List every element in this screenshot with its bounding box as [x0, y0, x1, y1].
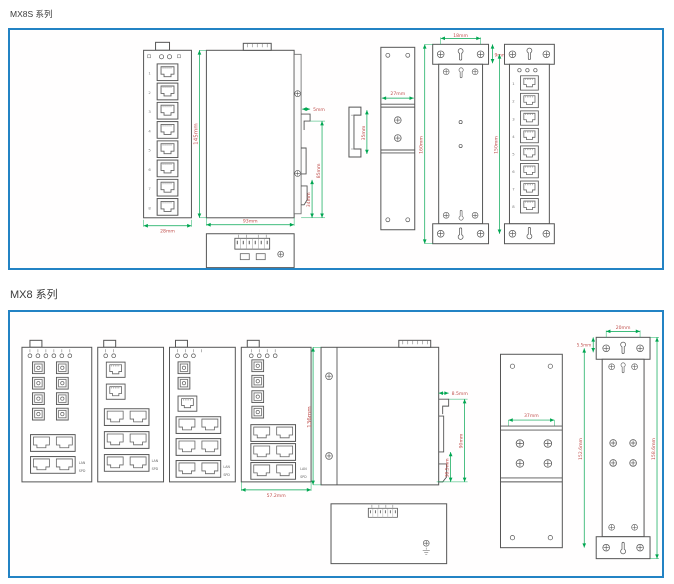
dim-mount-outer: 158.6mm — [651, 437, 657, 460]
front-view-wall-mounted: 1 2 3 4 5 6 7 8 — [504, 44, 554, 243]
front-variant-2: LAN SPD — [98, 340, 164, 482]
dim-mount-outer: 160mm — [419, 136, 425, 154]
wall-mount-view: 18mm 9mm 160mm 150mm — [419, 33, 507, 244]
dim-hole-spacing: 18mm — [453, 33, 468, 39]
section-title-mx8: MX8 系列 — [10, 286, 58, 302]
svg-text:LAN: LAN — [300, 467, 307, 471]
dim-front-width: 57.2mm — [267, 493, 287, 499]
front-variant-1: LAN SPD — [22, 340, 92, 482]
side-view: 136mm 8.5mm 90mm 38.5mm — [307, 340, 468, 485]
dim-clip-height: 85mm — [316, 163, 322, 178]
dim-clip-lower: 38.5mm — [445, 458, 451, 478]
dim-depth: 93mm — [243, 218, 258, 224]
svg-text:SPD: SPD — [152, 467, 159, 471]
mx8s-outline-drawing: 1 2 3 4 5 6 7 8 28mm — [10, 30, 662, 268]
bottom-view — [206, 234, 294, 268]
mx8-panel: LAN SPD LAN SPD — [8, 310, 664, 578]
svg-text:SPD: SPD — [79, 469, 86, 473]
bottom-view — [331, 504, 447, 564]
dim-plate-width: 27mm — [390, 91, 405, 97]
dim-plate-width: 37mm — [524, 413, 539, 419]
svg-text:LAN: LAN — [152, 459, 159, 463]
din-plate-view: 37mm — [500, 354, 562, 547]
mx8-outline-drawing: LAN SPD LAN SPD — [10, 312, 662, 576]
section-title-mx8s: MX8S 系列 — [10, 8, 53, 20]
dim-front-width: 28mm — [160, 229, 175, 235]
svg-text:SPD: SPD — [223, 473, 230, 477]
mx8s-panel: 1 2 3 4 5 6 7 8 28mm — [8, 28, 664, 270]
side-view: 145mm 5mm 85mm 34mm 93mm — [193, 43, 325, 225]
front-view-8port: 1 2 3 4 5 6 7 8 28mm — [144, 42, 192, 234]
dim-mount-inner: 150mm — [494, 136, 500, 154]
din-plate-view: 27mm — [381, 47, 415, 229]
svg-text:LAN: LAN — [223, 465, 230, 469]
dim-hole-offset: 5.5mm — [577, 342, 591, 347]
dim-clip-height: 90mm — [459, 433, 465, 448]
din-clip-profile: 35mm — [349, 107, 367, 157]
front-variant-4: LAN SPD 57.2mm — [241, 340, 311, 499]
dim-clip-depth: 5mm — [313, 107, 325, 113]
page: MX8S 系列 1 2 3 4 5 6 7 8 28mm — [0, 0, 674, 584]
dim-height: 145mm — [193, 123, 199, 145]
dim-mount-inner: 152.6mm — [578, 437, 584, 460]
dim-height: 136mm — [307, 406, 313, 428]
front-variant-3: LAN SPD — [170, 340, 236, 482]
dim-clip-depth: 8.5mm — [452, 391, 469, 397]
dim-clip-lower: 34mm — [306, 192, 312, 207]
wall-mount-view: 20mm 5.5mm 152.6mm 158.6mm — [577, 325, 659, 559]
svg-text:LAN: LAN — [79, 461, 86, 465]
dim-clip-profile-height: 35mm — [361, 125, 367, 140]
dim-hole-spacing: 20mm — [616, 325, 631, 331]
svg-text:SPD: SPD — [300, 475, 307, 479]
